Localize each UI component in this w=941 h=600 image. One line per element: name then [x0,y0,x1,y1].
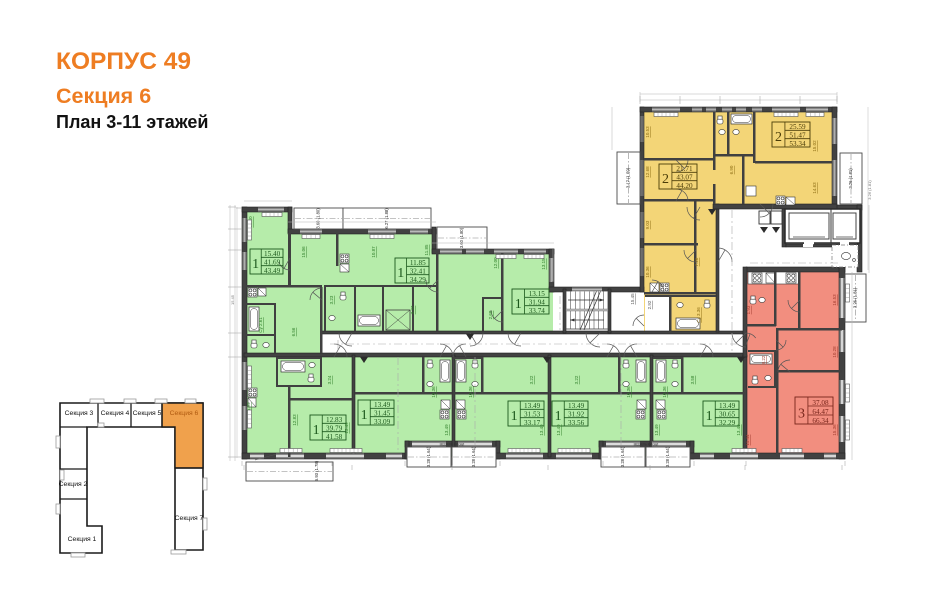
svg-text:15.06: 15.06 [301,246,306,258]
svg-text:6.27 (1.88): 6.27 (1.88) [384,208,389,229]
svg-text:13.49: 13.49 [736,424,741,436]
svg-text:3.24: 3.24 [327,375,332,384]
svg-text:13.49: 13.49 [539,424,544,436]
svg-text:3.26 (1.81): 3.26 (1.81) [853,287,858,308]
svg-text:МЕБЕЛЬ КУХНИ: МЕБЕЛЬ КУХНИ [634,442,659,446]
svg-text:2.68: 2.68 [488,310,493,319]
svg-text:25.59: 25.59 [789,123,806,131]
svg-text:16.53: 16.53 [832,294,837,306]
svg-text:Секция 3: Секция 3 [65,410,94,417]
svg-text:3.28 (1.64): 3.28 (1.64) [665,446,670,467]
svg-text:1: 1 [555,409,562,424]
svg-text:39.79: 39.79 [326,424,343,432]
svg-text:13.49: 13.49 [654,424,659,436]
svg-text:11.44: 11.44 [745,434,750,445]
svg-text:33.09: 33.09 [374,418,391,426]
svg-text:2.92: 2.92 [647,300,652,309]
svg-text:3.17 (1.59): 3.17 (1.59) [626,167,631,188]
svg-text:13.15: 13.15 [529,290,546,298]
svg-text:КОРПУС 49: КОРПУС 49 [56,48,191,75]
svg-text:10.53: 10.53 [645,126,650,138]
svg-text:31.94: 31.94 [529,298,546,306]
svg-text:1: 1 [515,297,522,312]
svg-text:53.34: 53.34 [789,140,806,148]
svg-text:5.93 (1.78): 5.93 (1.78) [314,460,319,481]
svg-text:10.36: 10.36 [468,386,473,398]
svg-text:1: 1 [511,409,518,424]
svg-text:1: 1 [252,257,259,272]
svg-text:7.26: 7.26 [694,257,699,266]
svg-text:3.37: 3.37 [410,305,415,314]
svg-text:13.49: 13.49 [524,402,541,410]
svg-text:Секция 2: Секция 2 [59,481,88,488]
svg-text:41.69: 41.69 [264,258,281,266]
svg-text:10.36: 10.36 [645,266,650,278]
svg-text:3.28 (1.64): 3.28 (1.64) [471,446,476,467]
svg-text:14.63: 14.63 [812,182,817,194]
svg-text:9.03: 9.03 [645,220,650,229]
svg-text:2: 2 [662,172,669,187]
svg-text:13.49: 13.49 [344,422,349,434]
svg-text:13.15: 13.15 [541,258,546,270]
svg-text:3.26 (1.81): 3.26 (1.81) [867,180,872,200]
svg-text:6.90: 6.90 [729,165,734,174]
svg-text:15.45: 15.45 [630,293,635,305]
svg-text:51.47: 51.47 [789,131,806,139]
svg-text:Секция 6: Секция 6 [56,84,151,108]
svg-text:10.87: 10.87 [371,246,376,258]
svg-text:13.49: 13.49 [719,402,736,410]
svg-text:1: 1 [397,266,404,281]
svg-text:10.28: 10.28 [832,346,837,358]
svg-text:12.83: 12.83 [292,414,297,426]
svg-text:15.40: 15.40 [264,250,281,258]
svg-text:64.47: 64.47 [812,408,829,416]
svg-text:3.58: 3.58 [690,375,695,384]
svg-text:Секция 6: Секция 6 [170,410,199,417]
svg-text:32.41: 32.41 [410,267,427,275]
svg-text:13.49: 13.49 [556,424,561,436]
svg-text:Су 2.61: Су 2.61 [258,317,263,333]
svg-text:10.36: 10.36 [431,386,436,398]
svg-text:3.22: 3.22 [574,375,579,384]
svg-text:Секция 4: Секция 4 [101,410,130,417]
svg-text:15.02: 15.02 [812,140,817,152]
svg-text:3.22: 3.22 [529,375,534,384]
svg-text:МЕБЕЛЬ КУХНИ: МЕБЕЛЬ КУХНИ [440,442,465,446]
svg-text:6.56: 6.56 [291,327,296,336]
svg-text:13.49: 13.49 [568,402,585,410]
svg-text:11.85: 11.85 [410,259,426,267]
svg-text:31.53: 31.53 [524,410,541,418]
svg-text:3: 3 [798,407,805,422]
svg-text:11.85: 11.85 [424,244,429,255]
svg-text:3.60 (1.80): 3.60 (1.80) [316,208,321,229]
svg-text:12.68: 12.68 [645,166,650,178]
svg-text:31.92: 31.92 [568,410,585,418]
svg-text:Секция 7: Секция 7 [175,515,204,522]
svg-text:Секция 1: Секция 1 [68,536,97,543]
svg-text:Су 3.36: Су 3.36 [696,307,701,323]
svg-text:12.83: 12.83 [326,416,343,424]
svg-text:41.58: 41.58 [326,433,343,441]
svg-text:44.20: 44.20 [676,182,693,190]
svg-text:1: 1 [361,408,368,423]
svg-text:34.29: 34.29 [410,276,427,284]
svg-text:66.34: 66.34 [812,417,829,425]
svg-text:43.07: 43.07 [676,173,693,181]
svg-text:31.45: 31.45 [374,409,391,417]
svg-text:8.22: 8.22 [761,355,766,364]
svg-text:Секция 5: Секция 5 [133,410,162,417]
svg-text:1: 1 [706,409,713,424]
svg-text:10.36: 10.36 [626,386,631,398]
svg-text:15.45: 15.45 [230,294,235,305]
svg-text:1: 1 [313,423,320,438]
svg-text:15.36: 15.36 [832,424,837,436]
svg-text:2: 2 [775,130,782,145]
svg-text:3.26 (1.81): 3.26 (1.81) [848,168,853,189]
svg-text:10.36: 10.36 [662,386,667,398]
svg-text:3.28 (1.64): 3.28 (1.64) [426,446,431,467]
svg-text:43.49: 43.49 [264,267,281,275]
svg-text:37.08: 37.08 [812,399,829,407]
svg-text:32.29: 32.29 [719,419,736,427]
svg-text:1.93: 1.93 [746,305,751,314]
svg-text:13.49: 13.49 [374,401,391,409]
svg-text:33.56: 33.56 [568,419,585,427]
svg-text:3.60 (1.80): 3.60 (1.80) [459,227,464,248]
svg-text:21.71: 21.71 [676,165,693,173]
svg-text:30.65: 30.65 [719,410,736,418]
svg-text:13.49: 13.49 [444,424,449,436]
svg-text:33.74: 33.74 [529,307,546,315]
svg-text:3.23: 3.23 [329,295,334,304]
svg-text:План 3-11 этажей: План 3-11 этажей [56,112,208,132]
